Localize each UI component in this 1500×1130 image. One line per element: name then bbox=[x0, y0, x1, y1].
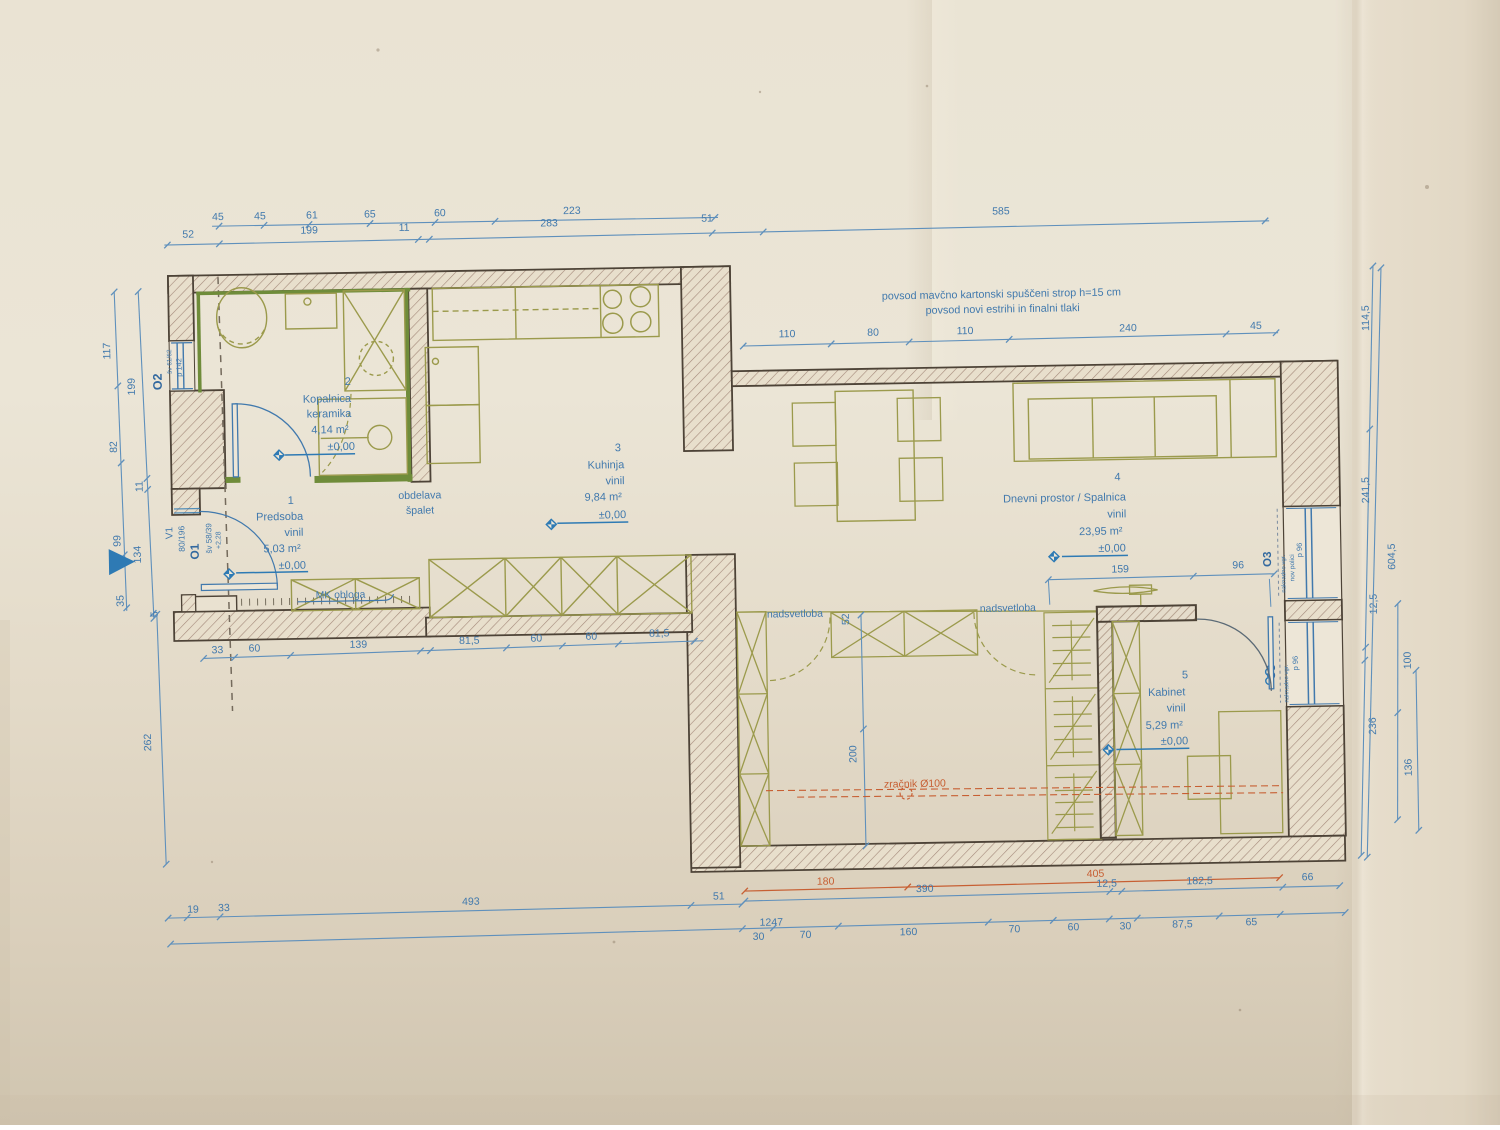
svg-text:60: 60 bbox=[434, 207, 446, 219]
svg-text:±0,00: ±0,00 bbox=[1098, 542, 1126, 554]
svg-text:šv 61/62: šv 61/62 bbox=[166, 349, 173, 374]
svg-text:81,5: 81,5 bbox=[459, 635, 480, 647]
svg-text:Kuhinja: Kuhinja bbox=[587, 459, 625, 472]
svg-text:4: 4 bbox=[1114, 471, 1120, 483]
svg-text:493: 493 bbox=[462, 896, 480, 908]
svg-text:390: 390 bbox=[916, 883, 934, 895]
svg-text:139: 139 bbox=[350, 639, 368, 651]
svg-text:236: 236 bbox=[1367, 717, 1379, 735]
svg-text:35: 35 bbox=[114, 595, 126, 607]
svg-text:šv 58/39: šv 58/39 bbox=[204, 523, 214, 554]
svg-text:±0,00: ±0,00 bbox=[278, 560, 306, 572]
svg-text:3: 3 bbox=[615, 442, 621, 454]
svg-text:51: 51 bbox=[701, 213, 713, 225]
svg-text:45: 45 bbox=[254, 210, 266, 222]
svg-text:99: 99 bbox=[111, 535, 123, 547]
svg-text:4,14 m²: 4,14 m² bbox=[311, 424, 349, 437]
svg-text:vinil: vinil bbox=[1167, 702, 1186, 714]
svg-text:60: 60 bbox=[248, 642, 260, 654]
svg-text:nadsvetloba: nadsvetloba bbox=[980, 603, 1036, 615]
svg-text:5,29 m²: 5,29 m² bbox=[1146, 719, 1184, 732]
svg-text:585: 585 bbox=[992, 205, 1010, 217]
svg-text:70: 70 bbox=[1009, 923, 1021, 935]
svg-text:2: 2 bbox=[345, 376, 351, 388]
svg-text:30: 30 bbox=[1119, 920, 1131, 932]
svg-text:O3: O3 bbox=[1262, 551, 1274, 567]
svg-text:p 142: p 142 bbox=[174, 358, 183, 377]
svg-text:160: 160 bbox=[900, 926, 918, 938]
svg-text:180: 180 bbox=[817, 875, 835, 887]
svg-text:30: 30 bbox=[753, 931, 765, 943]
svg-text:±0,00: ±0,00 bbox=[1161, 735, 1189, 747]
svg-text:182,5: 182,5 bbox=[1186, 875, 1213, 887]
svg-text:66: 66 bbox=[1302, 871, 1314, 883]
svg-text:60: 60 bbox=[585, 631, 597, 643]
svg-text:33: 33 bbox=[218, 902, 230, 914]
svg-text:±0,00: ±0,00 bbox=[327, 441, 355, 453]
svg-text:Kopalnica: Kopalnica bbox=[303, 393, 352, 406]
svg-text:9,84 m²: 9,84 m² bbox=[584, 491, 622, 504]
svg-text:vinil: vinil bbox=[1107, 508, 1126, 520]
svg-text:96: 96 bbox=[1232, 559, 1244, 571]
svg-text:±0,00: ±0,00 bbox=[599, 509, 627, 521]
svg-text:45: 45 bbox=[212, 211, 224, 223]
svg-text:241,5: 241,5 bbox=[1360, 477, 1372, 504]
svg-text:p 96: p 96 bbox=[1295, 543, 1304, 558]
svg-text:Kabinet: Kabinet bbox=[1148, 686, 1186, 699]
svg-text:65: 65 bbox=[364, 208, 376, 220]
svg-text:naknadno vgr.: naknadno vgr. bbox=[1281, 555, 1288, 593]
svg-text:70: 70 bbox=[800, 929, 812, 941]
svg-text:MK obloga: MK obloga bbox=[316, 590, 366, 602]
svg-text:keramika: keramika bbox=[307, 408, 353, 421]
svg-text:O1: O1 bbox=[188, 543, 202, 560]
svg-text:Dnevni prostor / Spalnica: Dnevni prostor / Spalnica bbox=[1003, 491, 1127, 505]
svg-text:nadsvetloba: nadsvetloba bbox=[767, 609, 823, 621]
svg-text:65: 65 bbox=[1245, 916, 1257, 928]
svg-text:262: 262 bbox=[142, 733, 154, 751]
svg-text:5,03 m²: 5,03 m² bbox=[263, 543, 301, 556]
svg-text:Predsoba: Predsoba bbox=[256, 511, 304, 524]
svg-text:117: 117 bbox=[101, 342, 113, 359]
svg-text:81,5: 81,5 bbox=[649, 627, 670, 639]
svg-text:604,5: 604,5 bbox=[1386, 543, 1398, 570]
svg-text:vinil: vinil bbox=[606, 475, 625, 487]
svg-text:1: 1 bbox=[288, 495, 294, 507]
svg-text:zračnik Ø100: zračnik Ø100 bbox=[884, 778, 946, 791]
svg-text:136: 136 bbox=[1403, 758, 1415, 776]
svg-text:159: 159 bbox=[1111, 563, 1129, 575]
svg-text:52: 52 bbox=[182, 229, 194, 241]
svg-text:vinil: vinil bbox=[284, 527, 303, 539]
svg-text:O2: O2 bbox=[151, 373, 165, 390]
svg-text:obdelava: obdelava bbox=[398, 489, 441, 502]
svg-text:199: 199 bbox=[300, 224, 318, 236]
svg-text:110: 110 bbox=[957, 325, 974, 337]
svg-text:60: 60 bbox=[530, 633, 542, 645]
svg-text:naknadno vgr.: naknadno vgr. bbox=[1284, 664, 1291, 702]
svg-text:23,95 m²: 23,95 m² bbox=[1079, 525, 1123, 538]
svg-text:11: 11 bbox=[134, 481, 146, 492]
svg-text:82: 82 bbox=[108, 441, 120, 453]
svg-text:5: 5 bbox=[1182, 669, 1188, 681]
svg-text:nov polici: nov polici bbox=[1289, 554, 1296, 581]
svg-text:61: 61 bbox=[306, 209, 318, 221]
svg-text:+2,28: +2,28 bbox=[215, 531, 222, 549]
svg-text:V1: V1 bbox=[164, 526, 175, 539]
svg-text:1247: 1247 bbox=[760, 916, 784, 928]
svg-text:12,5: 12,5 bbox=[1096, 878, 1117, 890]
svg-text:19: 19 bbox=[187, 904, 199, 916]
svg-text:špalet: špalet bbox=[406, 504, 435, 516]
svg-text:100: 100 bbox=[1402, 651, 1414, 669]
svg-text:223: 223 bbox=[563, 205, 581, 217]
svg-text:283: 283 bbox=[540, 217, 558, 229]
svg-text:11: 11 bbox=[399, 222, 410, 234]
svg-text:240: 240 bbox=[1119, 322, 1137, 334]
svg-text:87,5: 87,5 bbox=[1172, 918, 1193, 930]
svg-text:45: 45 bbox=[1250, 320, 1262, 332]
svg-text:p 96: p 96 bbox=[1291, 656, 1300, 671]
svg-text:60: 60 bbox=[1067, 921, 1079, 933]
svg-text:33: 33 bbox=[212, 644, 224, 656]
svg-text:80/196: 80/196 bbox=[176, 525, 186, 551]
svg-text:200: 200 bbox=[847, 745, 859, 763]
svg-text:134: 134 bbox=[132, 546, 144, 564]
svg-text:110: 110 bbox=[779, 328, 796, 340]
svg-text:114,5: 114,5 bbox=[1360, 305, 1372, 331]
svg-text:80: 80 bbox=[867, 327, 879, 339]
svg-text:199: 199 bbox=[126, 378, 138, 396]
svg-text:52: 52 bbox=[840, 613, 852, 625]
svg-text:51: 51 bbox=[713, 890, 725, 902]
